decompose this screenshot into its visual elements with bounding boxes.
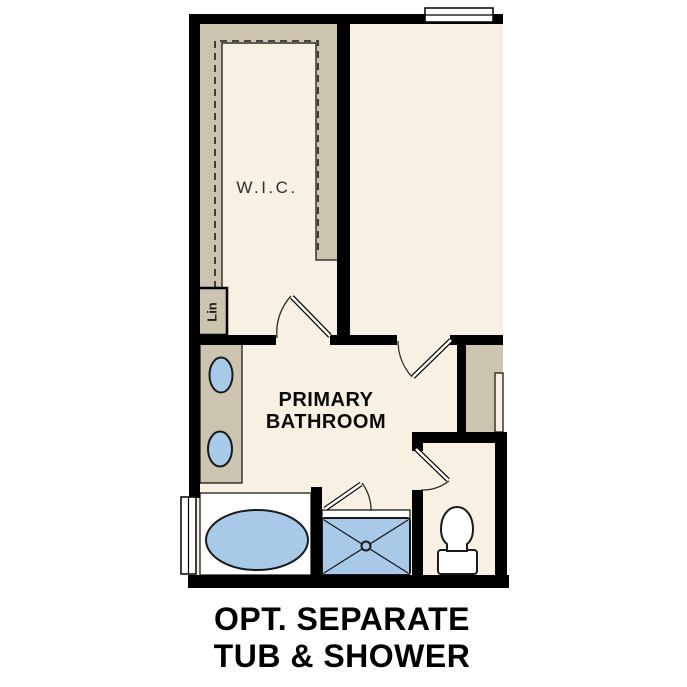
- plan-caption: OPT. SEPARATE TUB & SHOWER: [214, 601, 471, 675]
- toilet: [438, 507, 477, 574]
- bathroom-label-line2: BATHROOM: [266, 411, 386, 433]
- bathroom-label-line1: PRIMARY: [266, 389, 386, 411]
- wall-tub-shower-divider: [311, 487, 322, 577]
- bathroom-label: PRIMARY BATHROOM: [266, 389, 386, 433]
- wall-wc-top: [412, 432, 503, 443]
- wall-wc-left: [412, 490, 423, 577]
- shower-area: [322, 510, 410, 575]
- tub-area: [200, 493, 311, 575]
- wall-hall-right: [450, 335, 503, 345]
- wic-label: W.I.C.: [236, 178, 297, 198]
- plan-caption-line1: OPT. SEPARATE: [214, 601, 471, 638]
- toilet-tank: [438, 550, 477, 574]
- wall-hall-mid: [330, 335, 397, 345]
- wall-right-counter: [457, 345, 466, 433]
- shower-drain: [362, 542, 371, 551]
- wall-wic-bedroom: [337, 24, 350, 336]
- floorplan-canvas: W.I.C. Lin PRIMARY BATHROOM OPT. SEPARAT…: [0, 0, 687, 687]
- wic-shelf-left: [200, 24, 222, 288]
- right-counter-notch: [495, 373, 503, 432]
- wall-left: [189, 14, 200, 498]
- sink-bottom: [208, 432, 232, 467]
- plan-caption-line2: TUB & SHOWER: [214, 638, 471, 675]
- tub: [206, 510, 308, 570]
- sink-top: [210, 358, 233, 393]
- wall-wc-right: [495, 432, 507, 577]
- wall-bottom: [188, 575, 509, 588]
- wic-shelf-right: [316, 24, 337, 260]
- linen-label: Lin: [205, 302, 220, 322]
- wall-hall-left: [189, 335, 276, 345]
- floorplan-drawing: [0, 0, 687, 687]
